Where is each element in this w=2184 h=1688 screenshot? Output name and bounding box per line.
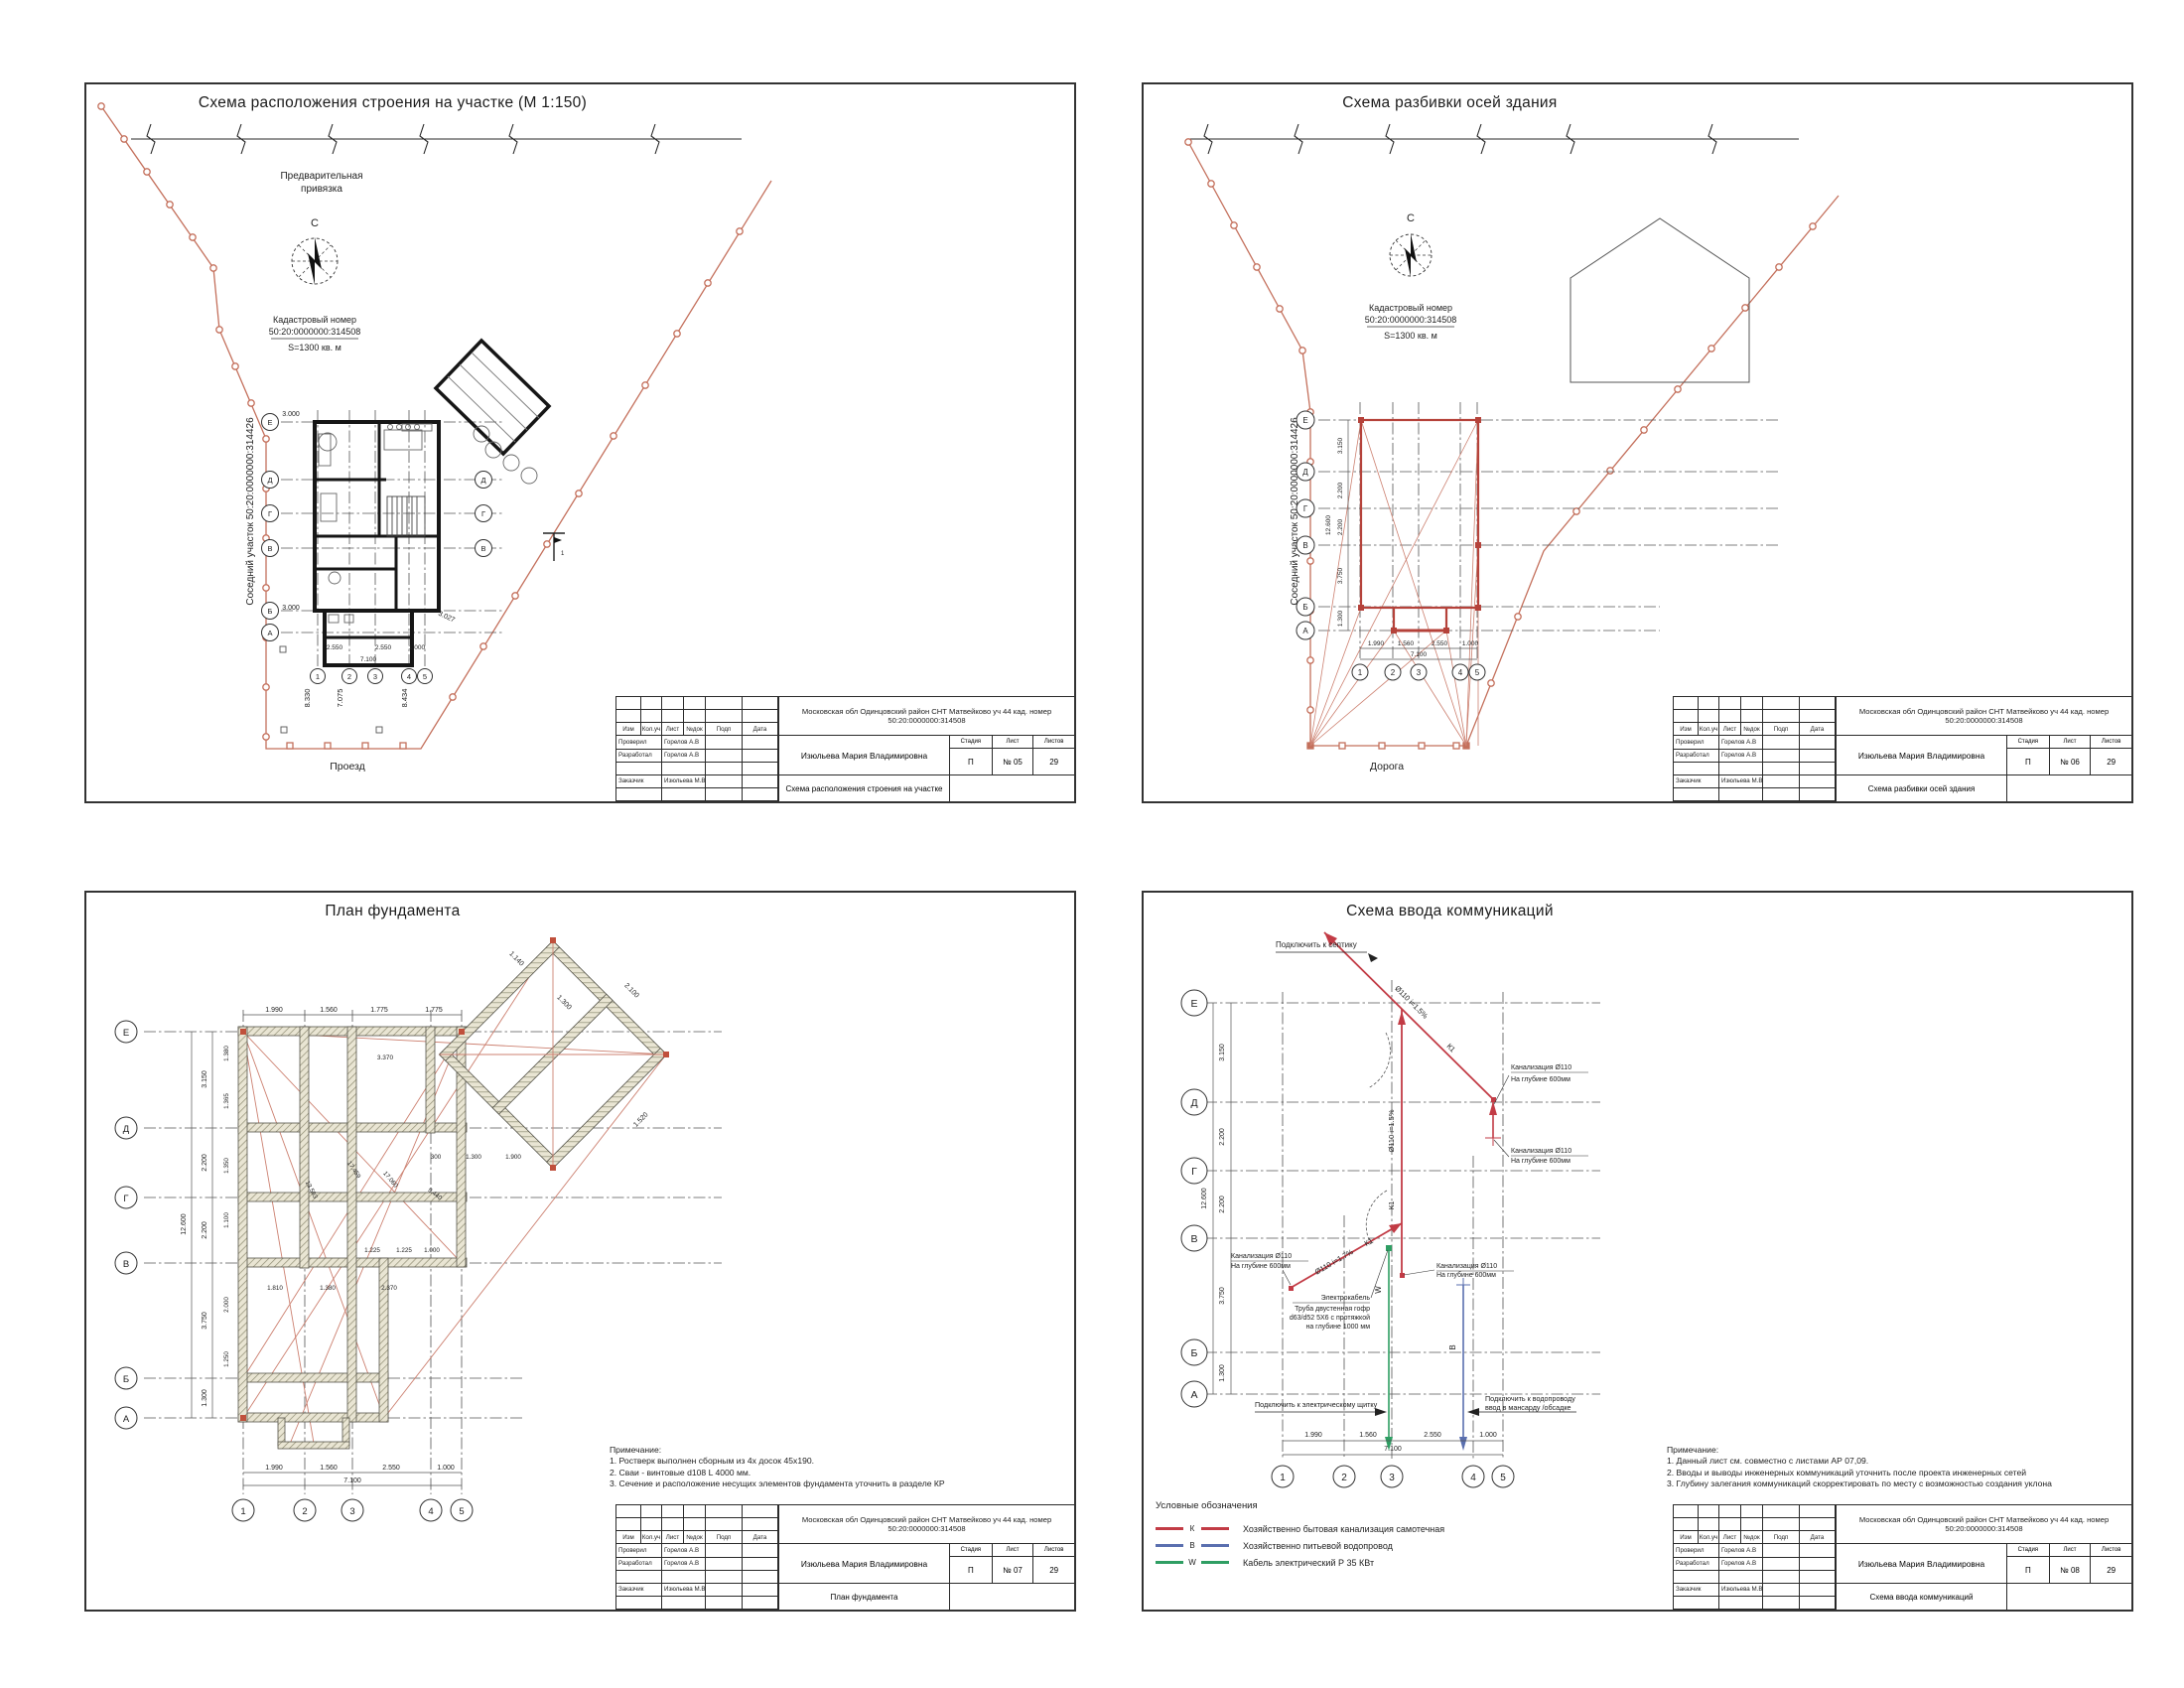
svg-text:Е: Е: [1302, 416, 1307, 425]
stamp-client-name: Изюльева Мария Владимировна: [779, 1544, 950, 1583]
svg-text:1.000: 1.000: [1462, 640, 1479, 647]
svg-text:Канализация Ø110: Канализация Ø110: [1511, 1064, 1571, 1071]
svg-text:4: 4: [407, 672, 411, 681]
cadastral-note: Кадастровый номер 50:20:0000000:314508 S…: [269, 315, 361, 352]
svg-text:2.550: 2.550: [1424, 1432, 1441, 1439]
compass: С: [292, 217, 338, 285]
svg-text:2.200: 2.200: [1219, 1196, 1226, 1213]
svg-text:W: W: [1374, 1286, 1383, 1294]
svg-text:12.600: 12.600: [1325, 515, 1332, 535]
svg-text:Подключить к водопроводу: Подключить к водопроводу: [1485, 1394, 1575, 1403]
terrace-planks: [448, 352, 539, 442]
svg-text:1.300: 1.300: [1337, 610, 1344, 627]
svg-text:привязка: привязка: [301, 184, 342, 195]
svg-text:В: В: [267, 544, 272, 553]
north-label: С: [1407, 212, 1415, 224]
svg-text:2: 2: [1341, 1473, 1347, 1483]
svg-text:В: В: [123, 1259, 129, 1270]
svg-text:2.550: 2.550: [327, 644, 343, 651]
stamp-sheet-title: Схема расположения строения на участке: [779, 775, 950, 801]
stamp-sheet-title: Схема разбивки осей здания: [1837, 775, 2007, 801]
svg-text:1.000: 1.000: [424, 1247, 440, 1254]
svg-text:Электрокабель: Электрокабель: [1321, 1294, 1371, 1302]
svg-text:3: 3: [373, 672, 377, 681]
svg-text:3.370: 3.370: [377, 1055, 394, 1061]
notes-block: Примечание:1. Данный лист см. совместно …: [1667, 1445, 2125, 1489]
page-title: Схема ввода коммуникаций: [1144, 903, 1756, 920]
svg-text:Б: Б: [1302, 603, 1307, 612]
svg-text:7.100: 7.100: [360, 656, 377, 663]
axes-grid: [1318, 402, 1779, 660]
svg-text:Д: Д: [1190, 1097, 1197, 1109]
svg-text:На глубине 600мм: На глубине 600мм: [1436, 1271, 1496, 1279]
power-cable-line: W: [1374, 1245, 1393, 1451]
svg-text:3: 3: [1389, 1473, 1395, 1483]
stamp-project-address: Московская обл Одинцовский район СНТ Мат…: [779, 1505, 1074, 1544]
compass-needle-icon: [1411, 233, 1417, 262]
stamp-project-address: Московская обл Одинцовский район СНТ Мат…: [1837, 697, 2131, 736]
stamp-client-name: Изюльева Мария Владимировна: [1837, 1544, 2007, 1583]
svg-text:7.100: 7.100: [343, 1477, 361, 1484]
sheet-axes-layout: С Кадастровый номер 50:20:0000000:314508…: [1142, 82, 2133, 803]
foundation-walls: [238, 1027, 467, 1449]
svg-text:1.250: 1.250: [223, 1351, 230, 1367]
svg-text:Г: Г: [1303, 504, 1308, 513]
svg-text:2.370: 2.370: [381, 1285, 397, 1292]
svg-text:1.900: 1.900: [505, 1154, 521, 1161]
svg-text:Б: Б: [268, 607, 273, 616]
stamp-project-address: Московская обл Одинцовский район СНТ Мат…: [1837, 1505, 2131, 1544]
sewer-callouts: Канализация Ø110 На глубине 600мм Канали…: [1231, 1064, 1588, 1285]
axes-grid: [1205, 980, 1600, 1459]
svg-text:2.200: 2.200: [1219, 1128, 1226, 1146]
compass-needle-icon: [315, 237, 322, 269]
svg-text:1.350: 1.350: [223, 1158, 230, 1174]
north-label: С: [311, 217, 319, 229]
svg-text:1: 1: [240, 1506, 245, 1517]
svg-text:1.365: 1.365: [223, 1093, 230, 1109]
axis-bubbles: Е Д Г В Б А 1 2 3 4 5: [1297, 411, 1485, 680]
stamp-sheet-title: План фундамента: [779, 1584, 950, 1610]
svg-text:3.750: 3.750: [202, 1312, 208, 1330]
svg-text:Д: Д: [480, 476, 485, 485]
svg-text:17.060: 17.060: [381, 1170, 399, 1190]
sheet-number: № 06: [2049, 749, 2091, 774]
svg-text:1.140: 1.140: [507, 950, 524, 967]
svg-text:4: 4: [1458, 668, 1463, 677]
svg-text:1.810: 1.810: [267, 1285, 283, 1292]
sheet-number: № 05: [992, 749, 1033, 774]
svg-text:А: А: [1190, 1389, 1197, 1401]
svg-text:А: А: [267, 629, 272, 637]
legend-item-cable: WКабель электрический Р 35 КВт: [1156, 1554, 1444, 1571]
svg-text:7.100: 7.100: [1384, 1446, 1402, 1453]
svg-text:d63/d52 5Х6 с протяжкой: d63/d52 5Х6 с протяжкой: [1290, 1314, 1370, 1322]
stamp-sheet-title: Схема ввода коммуникаций: [1837, 1584, 2007, 1610]
svg-text:12.600: 12.600: [181, 1213, 188, 1235]
svg-text:12.600: 12.600: [1201, 1188, 1208, 1209]
stamp-client-name: Изюльева Мария Владимировна: [1837, 736, 2007, 774]
svg-text:3: 3: [1417, 668, 1422, 677]
svg-text:2: 2: [302, 1506, 307, 1517]
legend: Условные обозначения КХозяйственно бытов…: [1156, 1500, 1444, 1571]
site-boundary: [98, 103, 771, 749]
stamp-revision-table: ИзмКол.учЛист№докПодпДата ПроверилГорело…: [616, 1505, 779, 1610]
svg-text:1.300: 1.300: [555, 994, 572, 1011]
svg-text:1.560: 1.560: [320, 1465, 338, 1472]
sheet-number: № 07: [992, 1557, 1033, 1583]
tie-lines: [1310, 420, 1478, 746]
sheet-site-plan: Предварительная привязка С Кадастровый н…: [84, 82, 1076, 803]
svg-text:Е: Е: [123, 1028, 129, 1039]
svg-text:3.750: 3.750: [1337, 567, 1344, 584]
svg-text:Подключить к электрическому щи: Подключить к электрическому щитку: [1255, 1400, 1378, 1409]
svg-text:8.434: 8.434: [400, 689, 409, 708]
svg-text:1.560: 1.560: [1359, 1432, 1377, 1439]
svg-text:3.000: 3.000: [282, 411, 300, 418]
svg-text:50:20:0000000:314508: 50:20:0000000:314508: [1365, 315, 1457, 325]
svg-text:Б: Б: [123, 1374, 129, 1385]
svg-text:К1: К1: [1387, 1201, 1396, 1210]
svg-text:1: 1: [316, 672, 320, 681]
legend-item-sewer: КХозяйственно бытовая канализация самоте…: [1156, 1520, 1444, 1537]
svg-text:Д: Д: [1302, 468, 1308, 477]
hookup-labels: Подключить к электрическому щитку Подклю…: [1255, 1394, 1576, 1416]
svg-text:1.380: 1.380: [320, 1285, 336, 1292]
svg-text:1.000: 1.000: [437, 1465, 455, 1472]
svg-text:ввод в мансарду /обсадке: ввод в мансарду /обсадке: [1485, 1403, 1571, 1412]
svg-text:2.000: 2.000: [223, 1297, 230, 1313]
stamp-revision-table: ИзмКол.учЛист№докПодпДата ПроверилГорело…: [1674, 697, 1837, 801]
page-title: Схема разбивки осей здания: [1144, 94, 1756, 112]
dimensions: 3.150 2.200 2.200 3.750 1.300 12.600 1.9…: [1325, 420, 1479, 659]
svg-text:4: 4: [1470, 1473, 1476, 1483]
stamp-revision-table: ИзмКол.учЛист№докПодпДата ПроверилГорело…: [616, 697, 779, 801]
svg-text:3.000: 3.000: [282, 605, 300, 612]
foundation-wing: [439, 940, 666, 1168]
svg-text:2.550: 2.550: [1432, 640, 1448, 647]
svg-text:1.990: 1.990: [1304, 1432, 1322, 1439]
svg-text:2.100: 2.100: [622, 982, 639, 999]
svg-text:Канализация Ø110: Канализация Ø110: [1511, 1148, 1571, 1155]
svg-text:1.560: 1.560: [1398, 640, 1415, 647]
svg-text:Канализация Ø110: Канализация Ø110: [1436, 1263, 1497, 1270]
svg-text:1.775: 1.775: [370, 1007, 388, 1014]
svg-text:5: 5: [1475, 668, 1480, 677]
svg-text:3.027: 3.027: [437, 611, 456, 625]
svg-text:1.990: 1.990: [265, 1465, 283, 1472]
water-line: В: [1448, 1278, 1470, 1451]
svg-text:В: В: [1190, 1233, 1197, 1245]
svg-text:2.200: 2.200: [1337, 518, 1344, 535]
svg-text:1.380: 1.380: [223, 1046, 230, 1061]
svg-text:1.100: 1.100: [223, 1212, 230, 1228]
svg-text:5: 5: [423, 672, 427, 681]
page-title: Схема расположения строения на участке (…: [86, 94, 699, 112]
sheet-number: № 08: [2049, 1557, 2091, 1583]
site-dimensions: 8.330 7.075 8.434 3.000 3.000 2.550 2.55…: [282, 411, 456, 707]
svg-text:3.750: 3.750: [1219, 1287, 1226, 1305]
svg-text:3: 3: [349, 1506, 354, 1517]
svg-text:2.550: 2.550: [382, 1465, 400, 1472]
svg-text:1.225: 1.225: [396, 1247, 412, 1254]
stamp-project-address: Московская обл Одинцовский район СНТ Мат…: [779, 697, 1074, 736]
dimensions: 3.150 2.200 2.200 3.750 1.300 12.600 1.9…: [1201, 1003, 1503, 1455]
foundation-plan-drawing: Е Д Г В Б А 1 2 3 4 5 1.990 1.560 1.775 …: [86, 893, 1074, 1610]
axes-layout-drawing: С Кадастровый номер 50:20:0000000:314508…: [1144, 84, 2131, 801]
title-block: ИзмКол.учЛист№докПодпДата ПроверилГорело…: [615, 1504, 1074, 1610]
septic-callout: Подключить к септику: [1276, 940, 1378, 962]
svg-text:1.300: 1.300: [202, 1389, 208, 1407]
svg-text:1.775: 1.775: [425, 1007, 443, 1014]
site-boundary: [1185, 139, 1839, 749]
svg-text:На глубине 600мм: На глубине 600мм: [1511, 1157, 1570, 1165]
sheet-utilities-entry: Ø110 i=1.5% К1 Ø110 i=1.5% К1 Ø110 i=1.7…: [1142, 891, 2133, 1612]
stamp-stage-table: СтадияЛистЛистов П№ 0829: [2007, 1544, 2131, 1583]
svg-text:5: 5: [1500, 1473, 1506, 1483]
legend-item-water: ВХозяйственно питьевой водопровод: [1156, 1537, 1444, 1554]
svg-text:Ø110 i=1.7%: Ø110 i=1.7%: [1313, 1247, 1355, 1276]
title-block: ИзмКол.учЛист№докПодпДата ПроверилГорело…: [1673, 1504, 2131, 1610]
svg-text:на глубине 1000 мм: на глубине 1000 мм: [1305, 1323, 1370, 1331]
svg-text:Подключить к септику: Подключить к септику: [1276, 940, 1357, 949]
svg-text:1.990: 1.990: [265, 1007, 283, 1014]
svg-text:Д: Д: [123, 1124, 130, 1135]
cable-line-icon: [1156, 1561, 1183, 1564]
svg-text:В: В: [1448, 1344, 1457, 1349]
svg-text:1.990: 1.990: [1368, 640, 1385, 647]
svg-text:Д: Д: [267, 476, 272, 485]
svg-text:1: 1: [1280, 1473, 1286, 1483]
svg-text:1: 1: [1358, 668, 1363, 677]
svg-text:1.300: 1.300: [1219, 1364, 1226, 1382]
prelim-label: Предварительная привязка: [280, 171, 362, 195]
road-label: Дорога: [1370, 761, 1404, 773]
svg-text:3.150: 3.150: [202, 1070, 208, 1088]
svg-text:На глубине 600мм: На глубине 600мм: [1231, 1262, 1291, 1270]
stamp-revision-table: ИзмКол.учЛист№докПодпДата ПроверилГорело…: [1674, 1505, 1837, 1610]
svg-text:Ø110 i=1.5%: Ø110 i=1.5%: [1393, 984, 1430, 1021]
svg-text:7.075: 7.075: [336, 689, 344, 708]
svg-text:Г: Г: [123, 1194, 128, 1204]
svg-text:4: 4: [428, 1506, 433, 1517]
road-label: Проезд: [330, 761, 365, 773]
svg-text:2: 2: [1391, 668, 1396, 677]
svg-text:1: 1: [561, 551, 565, 557]
notes-block: Примечание:1. Ростверк выполнен сборным …: [610, 1445, 1068, 1489]
svg-text:50:20:0000000:314508: 50:20:0000000:314508: [269, 327, 361, 337]
site-plan-drawing: Предварительная привязка С Кадастровый н…: [86, 84, 1074, 801]
svg-text:2.200: 2.200: [1337, 482, 1344, 498]
svg-text:В: В: [1302, 541, 1307, 550]
svg-text:Г: Г: [268, 509, 272, 518]
svg-text:Предварительная: Предварительная: [280, 171, 362, 182]
title-block: ИзмКол.учЛист№докПодпДата ПроверилГорело…: [1673, 696, 2131, 801]
svg-text:На глубине 600мм: На глубине 600мм: [1511, 1075, 1570, 1083]
svg-text:2: 2: [347, 672, 351, 681]
cadastral-note: Кадастровый номер 50:20:0000000:314508 S…: [1365, 303, 1457, 341]
svg-text:Г: Г: [481, 509, 485, 518]
svg-text:2.200: 2.200: [202, 1221, 208, 1239]
title-block: ИзмКол.учЛист№докПодпДата ПроверилГорело…: [615, 696, 1074, 801]
svg-text:2.550: 2.550: [375, 644, 392, 651]
svg-text:А: А: [1302, 627, 1308, 635]
legend-title: Условные обозначения: [1156, 1500, 1444, 1511]
svg-text:Труба двустенная гофр: Труба двустенная гофр: [1295, 1305, 1370, 1313]
svg-text:3.150: 3.150: [1337, 437, 1344, 454]
svg-text:1.300: 1.300: [466, 1154, 481, 1161]
roof-outline: [1570, 218, 1749, 382]
svg-text:2.200: 2.200: [202, 1154, 208, 1172]
top-break-line: [131, 124, 742, 154]
stamp-stage-table: СтадияЛистЛистов П№ 0629: [2007, 736, 2131, 774]
svg-text:S=1300 кв. м: S=1300 кв. м: [1384, 331, 1437, 341]
neighbor-plot-label: Соседний участок 50:20:0000000:314426: [245, 417, 256, 606]
svg-text:Г: Г: [1191, 1166, 1197, 1178]
svg-text:Е: Е: [267, 418, 272, 427]
svg-text:Канализация Ø110: Канализация Ø110: [1231, 1253, 1292, 1260]
axis-bubbles: Е Д Г В Б А Д Г В 1 2 3 4 5: [262, 414, 492, 684]
stamp-stage-table: СтадияЛистЛистов П№ 0729: [950, 1544, 1074, 1583]
svg-text:Ø110 i=1.5%: Ø110 i=1.5%: [1387, 1109, 1396, 1152]
svg-text:Б: Б: [1191, 1347, 1198, 1359]
svg-text:5: 5: [459, 1506, 464, 1517]
svg-text:3.150: 3.150: [1219, 1044, 1226, 1061]
stamp-stage-table: СтадияЛистЛистов П№ 0529: [950, 736, 1074, 774]
svg-text:Кадастровый номер: Кадастровый номер: [1369, 303, 1452, 313]
svg-text:Е: Е: [1190, 998, 1197, 1010]
page-title: План фундамента: [86, 903, 699, 920]
svg-text:S=1300 кв. м: S=1300 кв. м: [288, 343, 341, 352]
svg-text:300: 300: [431, 1154, 442, 1161]
svg-text:1.000: 1.000: [1479, 1432, 1497, 1439]
water-line-icon: [1156, 1544, 1183, 1547]
svg-text:1.560: 1.560: [320, 1007, 338, 1014]
svg-text:Кадастровый номер: Кадастровый номер: [273, 315, 356, 325]
svg-text:А: А: [123, 1414, 130, 1425]
drawing-set-canvas: Предварительная привязка С Кадастровый н…: [0, 0, 2184, 1688]
top-break-line: [1188, 124, 1799, 154]
sheet-foundation-plan: Е Д Г В Б А 1 2 3 4 5 1.990 1.560 1.775 …: [84, 891, 1076, 1612]
svg-text:1.520: 1.520: [632, 1111, 649, 1128]
svg-text:7.100: 7.100: [1411, 651, 1428, 658]
svg-text:В: В: [480, 544, 485, 553]
sewer-line-icon: [1156, 1527, 1183, 1530]
svg-text:К1: К1: [1445, 1042, 1457, 1054]
svg-text:8.330: 8.330: [303, 689, 312, 708]
compass: С: [1390, 212, 1432, 277]
stamp-client-name: Изюльева Мария Владимировна: [779, 736, 950, 774]
stairs: [387, 496, 425, 536]
svg-text:1.000: 1.000: [409, 644, 426, 651]
svg-text:1.225: 1.225: [364, 1247, 380, 1254]
